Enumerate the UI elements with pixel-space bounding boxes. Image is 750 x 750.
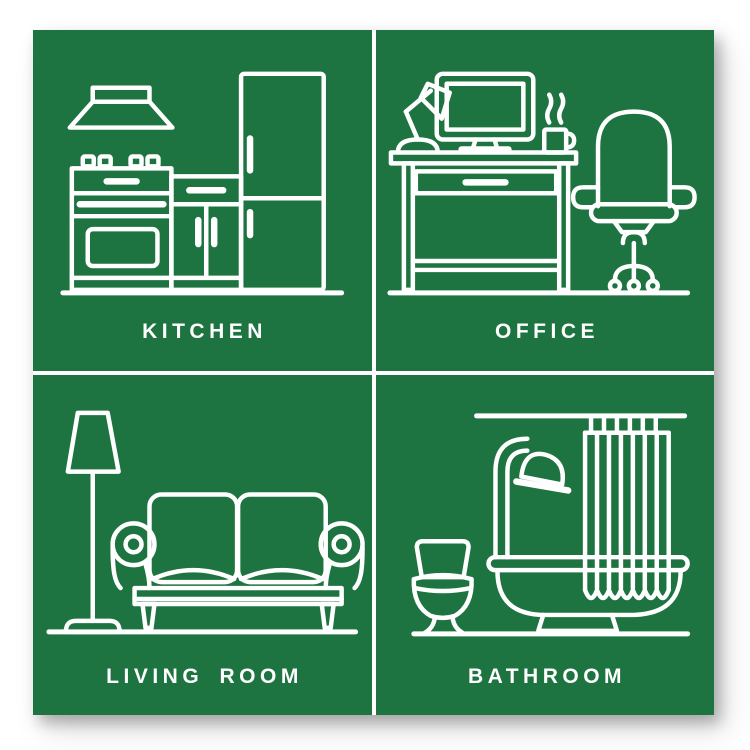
monitor <box>436 74 533 150</box>
shower-head <box>495 438 568 556</box>
panel-label-bathroom: BATHROOM <box>376 663 715 691</box>
panel-bathroom: BATHROOM <box>376 375 715 716</box>
office-chair <box>573 112 694 291</box>
room-icons-poster: KITCHEN <box>33 30 714 715</box>
stove <box>72 156 172 289</box>
panel-kitchen: KITCHEN <box>33 30 372 371</box>
steaming-mug <box>544 95 574 153</box>
panel-label-office: OFFICE <box>376 318 715 346</box>
refrigerator <box>241 74 324 290</box>
desk-lamp <box>397 84 449 153</box>
toilet <box>413 541 471 633</box>
sofa <box>113 494 363 627</box>
range-hood <box>70 88 173 128</box>
page: { "poster": { "page_background": "#fffff… <box>0 0 750 750</box>
panel-label-kitchen: KITCHEN <box>33 318 372 346</box>
floor-lamp <box>66 412 120 631</box>
desk <box>390 152 575 289</box>
panel-living-room: LIVING ROOM <box>33 375 372 716</box>
cabinet <box>171 176 241 289</box>
panel-label-living-room: LIVING ROOM <box>33 663 372 691</box>
panel-office: OFFICE <box>376 30 715 371</box>
